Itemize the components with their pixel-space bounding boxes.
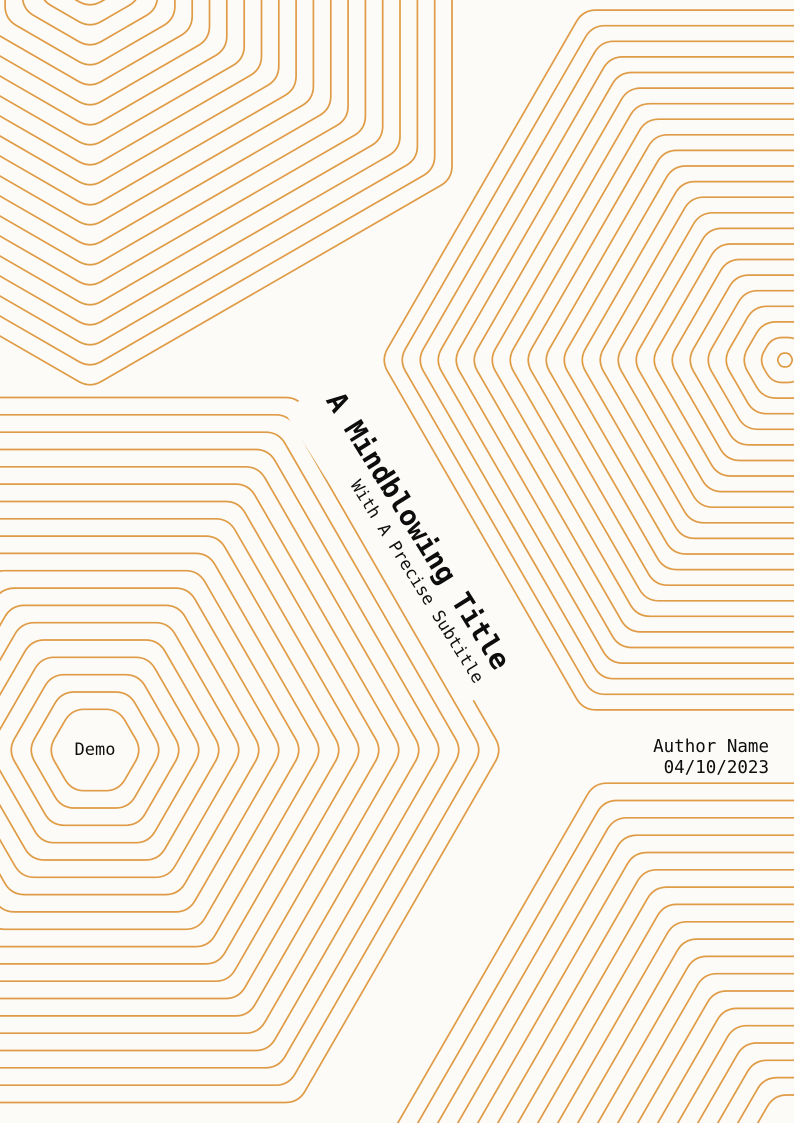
- hexagon-ring: [636, 228, 794, 491]
- hexagon-ring: [618, 213, 794, 507]
- author-name: Author Name: [653, 737, 769, 758]
- hexagon-ring: [23, 0, 158, 45]
- hexagon-ring: [600, 197, 794, 523]
- hexagon-ring: [564, 166, 794, 554]
- hexagon-ring: [778, 353, 792, 367]
- author-block: Author Name 04/10/2023: [649, 734, 773, 781]
- hexagon-ring: [531, 904, 794, 1123]
- hexagon-ring: [0, 0, 279, 185]
- hexagon-ring: [510, 119, 794, 601]
- hexagon-ring: [0, 0, 210, 105]
- hexagon-ring: [5, 0, 175, 65]
- author-date: 04/10/2023: [653, 758, 769, 779]
- hexagon-ring: [456, 73, 794, 648]
- hexagon-ring: [0, 0, 400, 325]
- hexagon-ring: [571, 939, 794, 1123]
- hexagon-ring: [0, 0, 365, 285]
- demo-badge: Demo: [75, 740, 116, 760]
- hexagon-ring: [551, 922, 794, 1123]
- hexagon-ring: [654, 244, 794, 476]
- hexagon-ring: [0, 0, 331, 245]
- hexagon-ring: [744, 322, 794, 398]
- hexagon-ring: [0, 623, 239, 878]
- hexagon-ring: [0, 571, 299, 930]
- hexagon-ring: [0, 0, 244, 145]
- hexagon-ring: [0, 605, 259, 894]
- hexagon-ring: [0, 467, 419, 1033]
- hexagon-ring: [751, 1095, 794, 1123]
- hexagon-ring: [0, 0, 452, 385]
- hexagon-ring: [391, 783, 794, 1123]
- hexagon-ring: [492, 104, 794, 617]
- hexagon-ring: [611, 974, 794, 1123]
- hexagon-ring: [471, 853, 794, 1123]
- hexagon-ring: [411, 801, 794, 1123]
- hexagon-ring: [711, 1060, 794, 1123]
- hexagon-ring: [0, 0, 313, 225]
- hexagon-ring: [40, 0, 140, 25]
- hexagon-ring: [57, 0, 123, 5]
- hexagon-cluster-bottom-right: [391, 783, 794, 1123]
- hexagon-ring: [671, 1026, 794, 1123]
- hexagon-cluster-top-left: [0, 0, 452, 385]
- hexagon-ring: [691, 1043, 794, 1123]
- hexagon-ring: [528, 135, 794, 585]
- document-page: A Mindblowing Title With A Precise Subti…: [0, 0, 794, 1123]
